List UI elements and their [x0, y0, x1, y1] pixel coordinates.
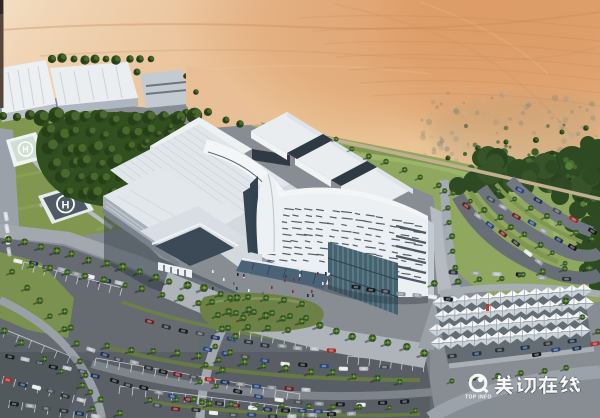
svg-text:TOP INFO: TOP INFO: [465, 395, 492, 401]
svg-text:H: H: [62, 199, 70, 211]
svg-text:H: H: [22, 145, 29, 155]
